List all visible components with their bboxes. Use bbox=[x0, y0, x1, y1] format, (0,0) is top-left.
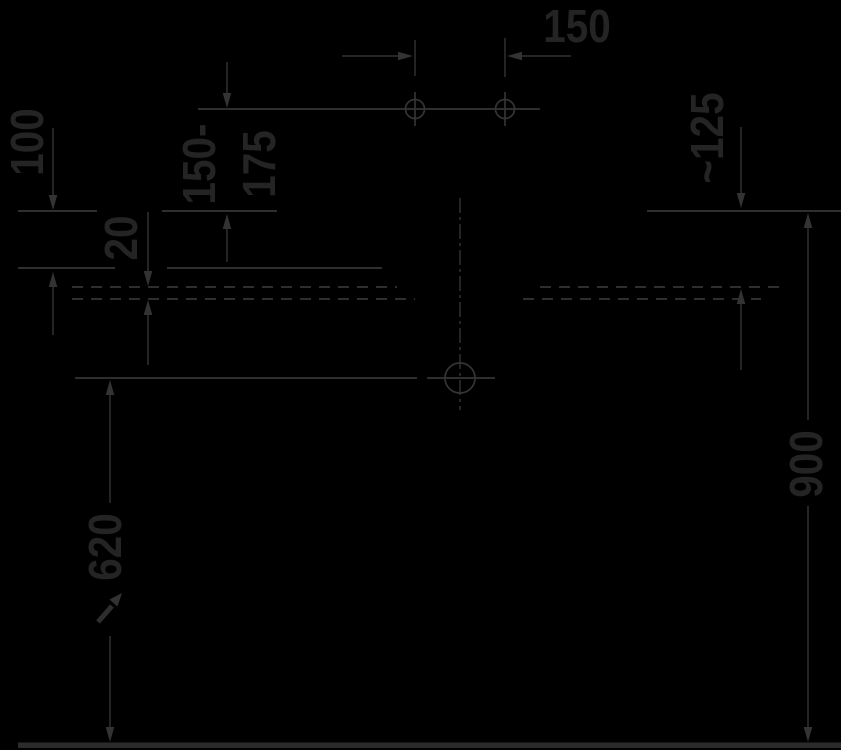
dim-label-20: 20 bbox=[98, 141, 144, 335]
floor-line bbox=[18, 743, 841, 749]
dim-label-150-175-line1: 150- bbox=[169, 123, 229, 204]
dim-label-150-175: 150- 175 bbox=[169, 67, 289, 261]
drain bbox=[75, 363, 495, 393]
arrow-up-icon bbox=[737, 289, 746, 304]
arrow-up-icon bbox=[106, 380, 115, 395]
arrow-up-icon bbox=[804, 213, 813, 228]
dim-label-hole-spacing: 150 bbox=[480, 3, 674, 49]
installation-drawing: 150 100 150- 175 20 ~125 620 900 bbox=[0, 0, 841, 750]
dim-125-lines bbox=[737, 127, 746, 370]
dim-label-620: 620 bbox=[82, 450, 128, 644]
arrow-down-icon bbox=[737, 193, 746, 208]
dim-label-100: 100 bbox=[4, 45, 50, 239]
arrow-up-icon bbox=[49, 272, 58, 287]
dim-label-150-175-line2: 175 bbox=[229, 130, 289, 198]
arrow-down-icon bbox=[106, 727, 115, 742]
dim-label-125: ~125 bbox=[684, 41, 730, 235]
dim-label-900: 900 bbox=[783, 367, 829, 561]
arrow-left-icon bbox=[507, 52, 522, 61]
arrow-right-icon bbox=[398, 52, 413, 61]
arrow-down-icon bbox=[804, 727, 813, 742]
arrow-up-icon bbox=[144, 300, 153, 315]
arrow-down-icon bbox=[144, 271, 153, 286]
supply-dashed-lines bbox=[72, 287, 781, 299]
